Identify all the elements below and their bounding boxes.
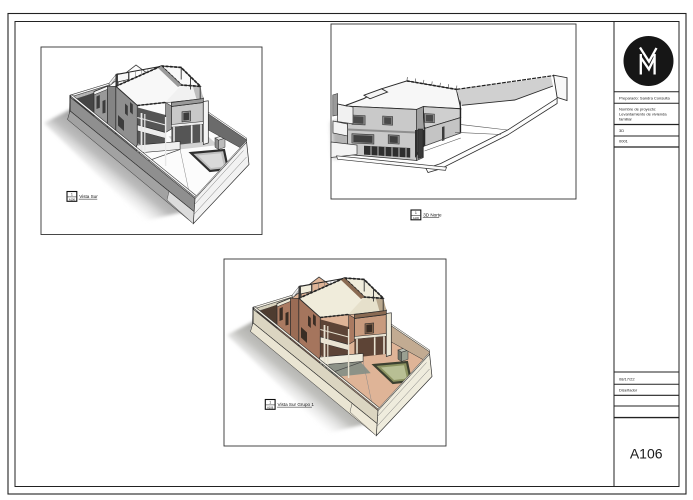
svg-text:A106: A106: [69, 197, 76, 201]
svg-text:A106: A106: [267, 405, 274, 409]
svg-text:Vista Sur Grupo 1: Vista Sur Grupo 1: [278, 402, 315, 407]
svg-text:Diseñador: Diseñador: [619, 388, 638, 393]
svg-text:A106: A106: [630, 445, 663, 461]
svg-text:familiar: familiar: [619, 117, 633, 122]
svg-text:Preparado: Sandra Consulta: Preparado: Sandra Consulta: [619, 95, 670, 100]
svg-text:0001: 0001: [619, 139, 629, 144]
svg-text:A106: A106: [413, 216, 420, 220]
svg-text:1: 1: [269, 401, 271, 405]
svg-text:3D: 3D: [619, 128, 624, 133]
svg-text:08/17/22: 08/17/22: [619, 377, 635, 382]
svg-text:Vista Sur: Vista Sur: [79, 194, 98, 199]
svg-text:1: 1: [71, 193, 73, 197]
svg-text:3D Norte: 3D Norte: [423, 212, 442, 217]
svg-text:Nombre de proyecto:: Nombre de proyecto:: [619, 106, 656, 111]
svg-text:1: 1: [415, 211, 417, 215]
